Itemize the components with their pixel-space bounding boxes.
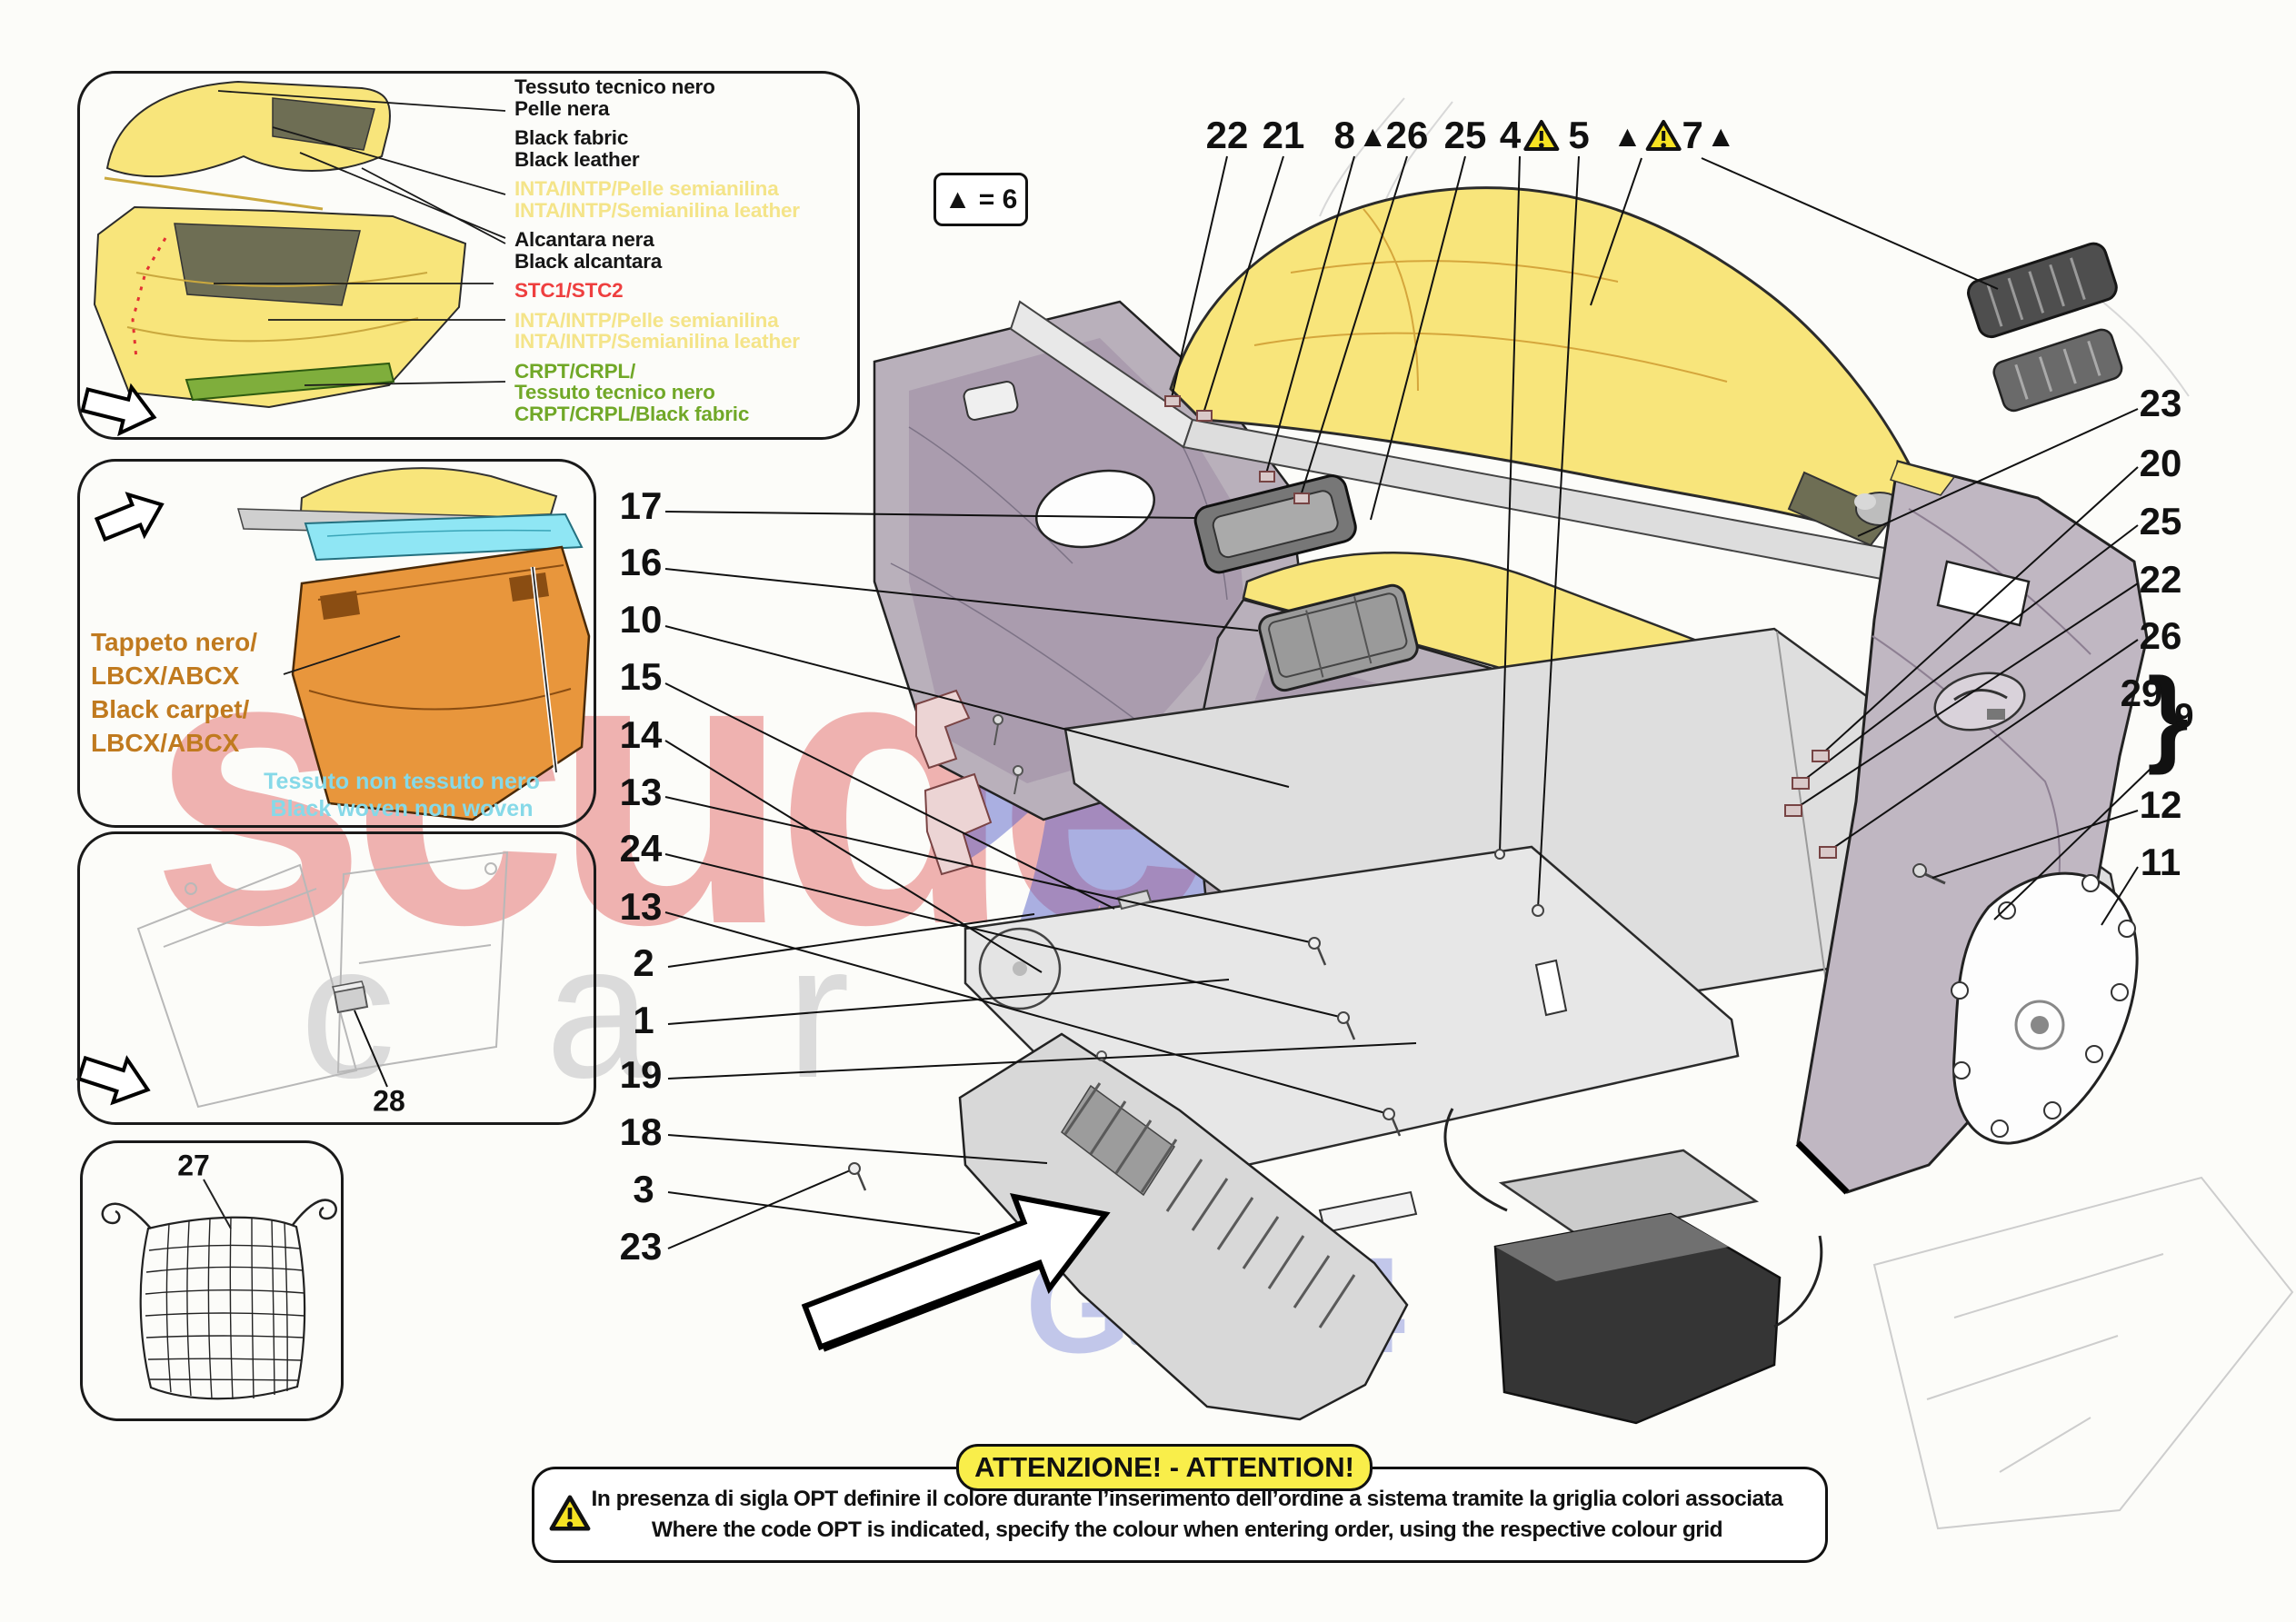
storage-bin (1445, 1109, 1822, 1423)
faint-sketch (1874, 1178, 2292, 1528)
brace-9-group: } (2147, 656, 2189, 776)
direction-arrow-icon (75, 1047, 155, 1111)
exploded-diagram-canvas: scuderia c a r t s this document, in aut… (0, 0, 2296, 1622)
direction-arrow-icon (93, 484, 170, 549)
watermark-letter-a: a (545, 904, 652, 1118)
parts-diagram-page: { "legend": { "text": "▲ = 6" }, "materi… (0, 0, 2296, 1622)
materials-box-illustration (79, 82, 505, 440)
net-box-illustration (103, 1179, 336, 1399)
vent-grilles (1965, 241, 2124, 413)
